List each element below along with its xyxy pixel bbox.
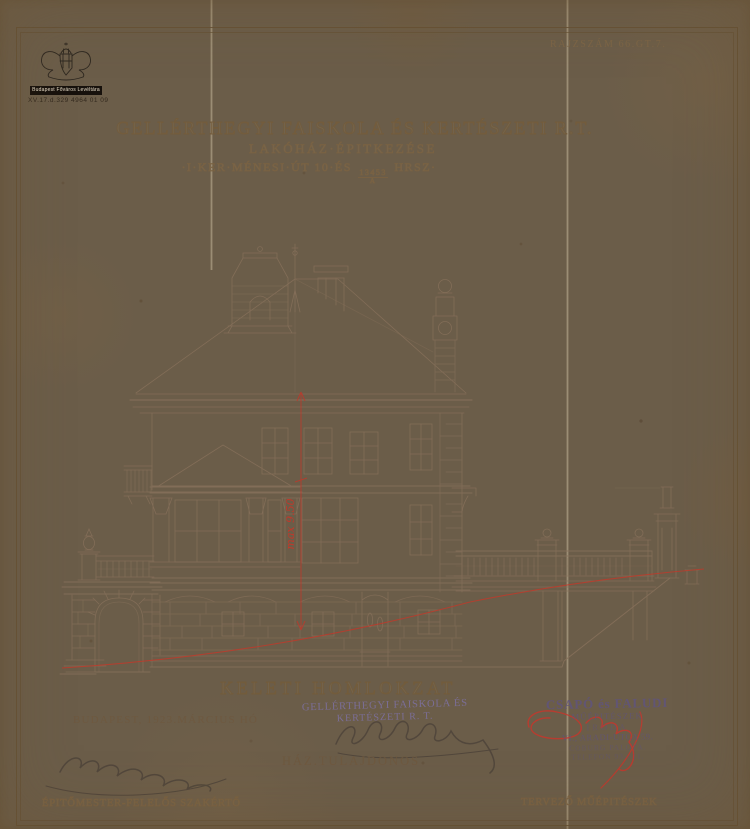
architect-stamp-address: VI., ARADI-UTCA 59. [520,731,695,743]
main-roof [130,279,472,413]
lot-number: 13453A [358,169,388,185]
address-prefix: ·I·KER·MÉNESI·ÚT 10·ÉS [181,160,351,174]
gateway-urn-and-balustrade [78,529,154,582]
coat-of-arms-icon [28,42,104,86]
archive-stamp: Budapest Főváros Levéltára XV.17.d.329 4… [28,42,108,91]
address-suffix: HRSZ· [394,160,436,174]
left-balcony [124,466,152,504]
corner-quoins [440,413,462,592]
entrance-pier [360,592,390,666]
corner-finial-pillar [433,280,457,393]
left-gateway [62,582,162,672]
drawing-number: RAJZSZÁM 66.GT.7. [550,39,666,50]
roof-cupola [224,247,296,333]
architect-stamp-phone: TELEFON 93—11. [520,751,695,762]
builder-role-label: ÉPITŐMESTER-FELELŐS SZAKÉRTŐ [42,798,241,809]
pencil-signatures [46,721,498,795]
upper-floor [152,413,462,592]
roof-spire [290,244,300,312]
ground-floor-rustication [152,594,462,667]
mid-cornice [150,578,472,590]
owner-stamp: GELLÉRTHEGYI FAISKOLA ÉS KERTÉSZETI R. T… [300,698,471,726]
porch-loggia [148,445,302,567]
garden-gate-pillar [615,487,699,584]
owner-label: HÁZ.TULAJDONOS [282,754,420,769]
architect-stamp: CSAPÓ és FALUDI MŰÉPITÉSZEK IRODA VI., A… [519,695,695,764]
plinth-and-ground [60,578,670,674]
max-height-annotation: max 9.50 [284,498,297,549]
paper-specks [0,0,2,2]
archive-reference-number: XV.17.d.329 4964 01 09 [28,97,109,104]
project-title: GELLÉRTHEGYI FAISKOLA ÉS KERTÉSZETI R.T. [0,118,710,139]
architect-stamp-role: MŰÉPITÉSZEK [520,710,695,722]
main-floor-windows [302,498,432,563]
project-subtitle: LAKÓHÁZ·ÉPITKEZÉSE [0,141,686,157]
chimney [314,266,348,311]
architect-stamp-name: CSAPÓ és FALUDI [519,695,694,711]
architect-stamp-office: IRODA [520,721,695,733]
red-pencil-annotations [62,392,704,668]
string-course [150,486,476,512]
right-terrace [452,529,656,661]
date-place-line: BUDAPEST, 1923.MÁRCIUS HÓ [73,714,258,726]
address-line: ·I·KER·MÉNESI·ÚT 10·ÉS 13453A HRSZ· [0,160,618,185]
architects-role-label: TERVEZŐ MŰÉPITÉSZEK [521,797,658,808]
scanned-archival-drawing: Budapest Főváros Levéltára XV.17.d.329 4… [0,0,750,829]
archive-stamp-institution: Budapest Főváros Levéltára [30,86,102,95]
basement-windows [222,610,440,636]
